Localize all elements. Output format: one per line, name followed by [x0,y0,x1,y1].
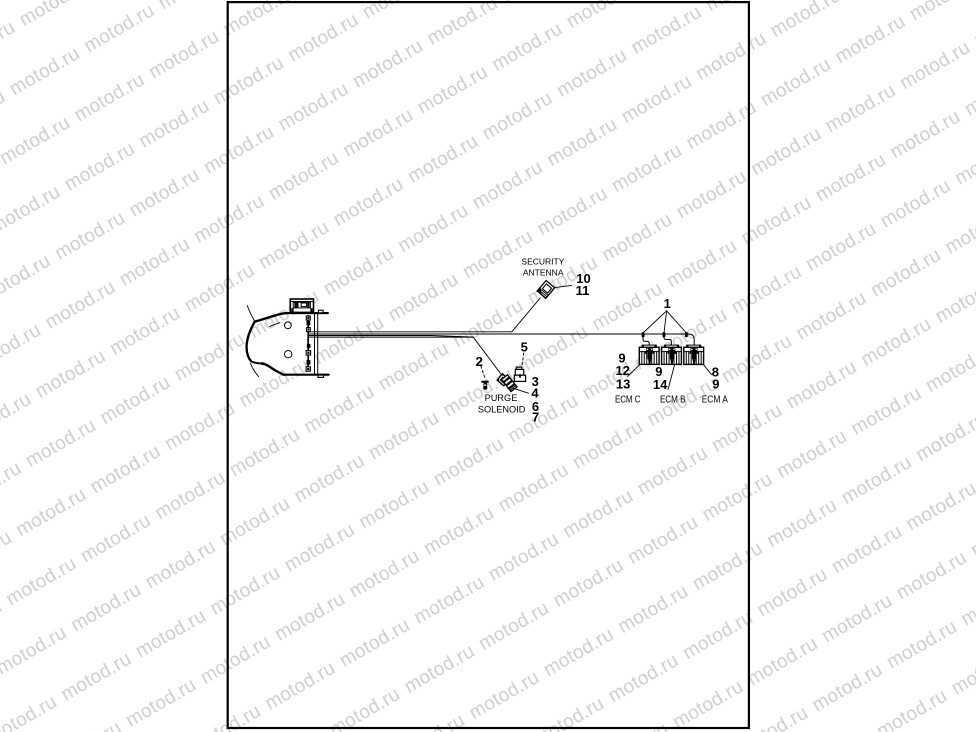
svg-text:13: 13 [616,376,630,391]
svg-text:SECURITY: SECURITY [521,256,564,266]
svg-text:11: 11 [576,283,590,298]
svg-text:14: 14 [653,377,668,392]
svg-text:9: 9 [712,377,719,392]
svg-text:7: 7 [532,410,539,425]
svg-text:2: 2 [476,354,483,369]
svg-text:ANTENNA: ANTENNA [523,268,564,278]
svg-text:PURGE: PURGE [485,393,518,403]
svg-text:5: 5 [521,339,528,354]
svg-text:ECM C: ECM C [615,395,641,406]
svg-text:1: 1 [664,296,671,311]
svg-text:SOLENOID: SOLENOID [478,405,526,415]
svg-text:ECM B: ECM B [660,395,686,406]
svg-text:ECM A: ECM A [702,395,728,406]
